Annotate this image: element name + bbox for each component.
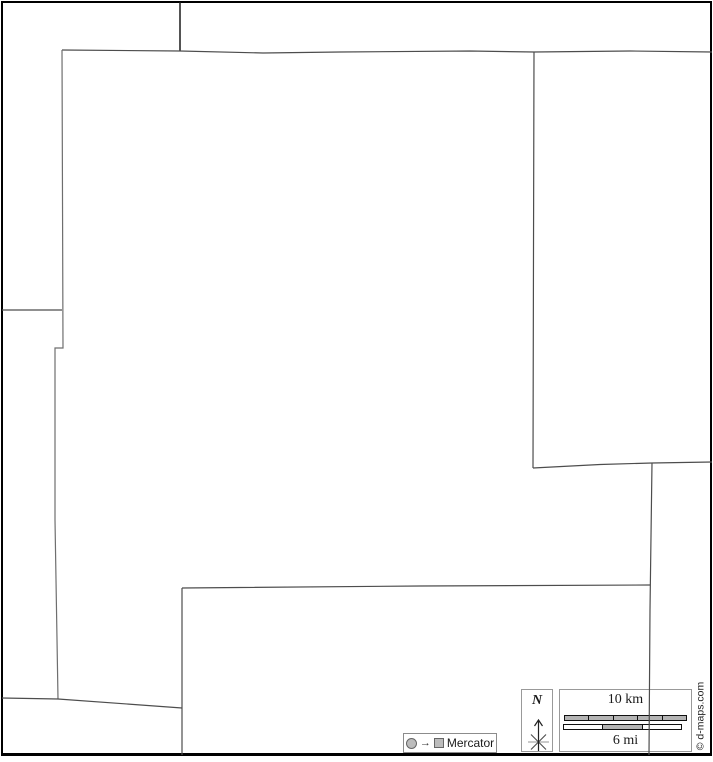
- scale-segment: [662, 716, 686, 720]
- scale-segment: [642, 725, 681, 729]
- scale-segment: [564, 725, 602, 729]
- scale-mi-bar: [563, 724, 682, 730]
- scale-segment: [588, 716, 612, 720]
- compass-arrow-icon: [522, 690, 554, 753]
- scale-segment: [613, 716, 637, 720]
- scale-segment: [637, 716, 661, 720]
- projection-label: Mercator: [447, 737, 494, 749]
- flat-map-square-icon: [434, 738, 444, 748]
- map-canvas: → Mercator N 10 km 6 mi © d-maps.com: [0, 0, 713, 762]
- arrow-right-icon: →: [420, 738, 431, 749]
- scale-segment: [565, 716, 588, 720]
- projection-legend: → Mercator: [403, 733, 497, 753]
- map-frame-border: [1, 1, 712, 756]
- globe-circle-icon: [406, 738, 417, 749]
- north-indicator: N: [521, 689, 553, 752]
- scale-bar-legend: 10 km 6 mi: [559, 689, 692, 752]
- scale-mi-label: 6 mi: [560, 733, 691, 749]
- scale-km-label: 10 km: [560, 692, 691, 708]
- scale-km-bar: [564, 715, 687, 721]
- scale-segment: [602, 725, 641, 729]
- copyright-text: © d-maps.com: [695, 679, 711, 754]
